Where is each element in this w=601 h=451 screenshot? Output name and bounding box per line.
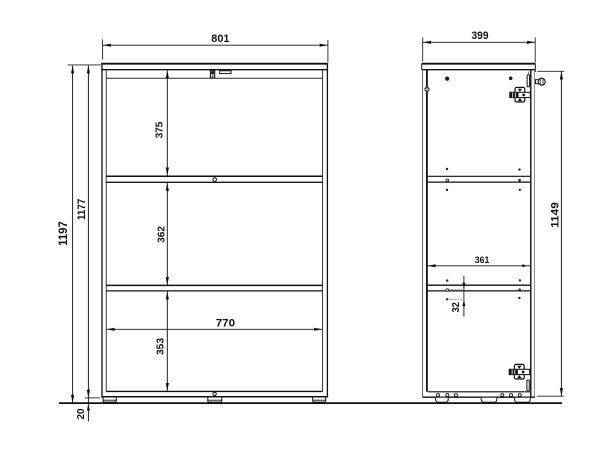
svg-text:361: 361 [475, 255, 490, 266]
svg-text:375: 375 [155, 121, 166, 138]
svg-text:362: 362 [156, 225, 167, 243]
svg-text:1177: 1177 [76, 199, 88, 220]
svg-text:399: 399 [472, 30, 489, 42]
svg-text:353: 353 [155, 337, 166, 355]
svg-text:1197: 1197 [58, 221, 70, 246]
svg-text:770: 770 [216, 317, 235, 329]
svg-text:32: 32 [451, 302, 462, 313]
svg-text:801: 801 [211, 33, 229, 45]
svg-text:20: 20 [76, 408, 87, 420]
svg-text:1149: 1149 [550, 202, 562, 228]
